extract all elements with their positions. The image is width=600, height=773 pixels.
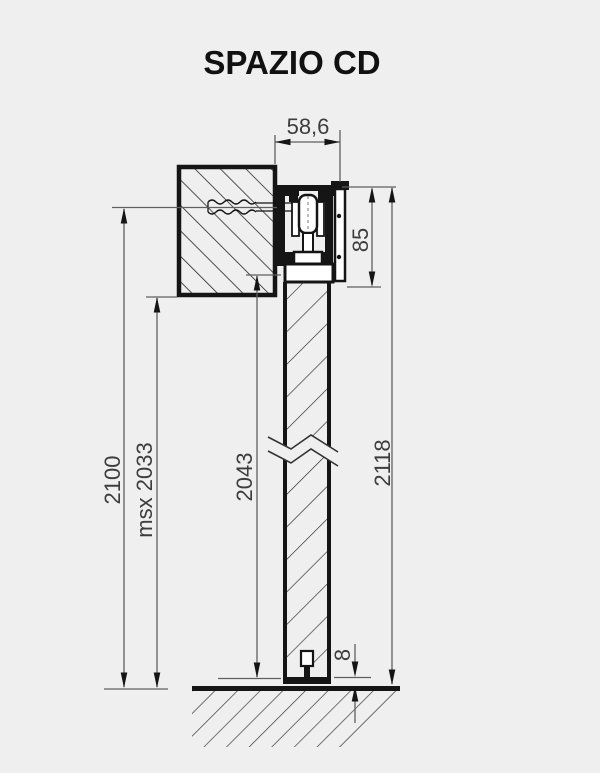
dim-floor-clearance-label: 8 [330, 649, 355, 661]
dim-total-height: 2118 [370, 187, 395, 685]
dim-total-height-label: 2118 [370, 439, 395, 486]
hanger-bolt [303, 233, 313, 252]
door-panel [283, 282, 331, 671]
clamp-bracket [294, 252, 322, 264]
floor-line [192, 686, 400, 691]
dim-head-height: 85 [342, 187, 396, 287]
dim-door-height-label: 2043 [232, 453, 257, 502]
wall-section [179, 167, 275, 295]
dim-msx-height: msx 2033 [132, 297, 177, 688]
dim-door-height: 2043 [218, 275, 281, 679]
dim-track-width: 58,6 [275, 114, 340, 182]
dim-track-width-label: 58,6 [287, 114, 330, 139]
dim-opening-height-label: 2100 [100, 456, 125, 505]
guide-pin-icon [301, 651, 313, 666]
technical-drawing: 58,6 85 2118 2043 2100 [0, 0, 600, 773]
dim-msx-height-label: msx 2033 [132, 442, 157, 537]
drawing-canvas: SPAZIO CD [0, 0, 600, 773]
dim-head-height-label: 85 [348, 228, 373, 252]
floor-hatch [192, 691, 400, 747]
door-top-cap [285, 264, 333, 282]
